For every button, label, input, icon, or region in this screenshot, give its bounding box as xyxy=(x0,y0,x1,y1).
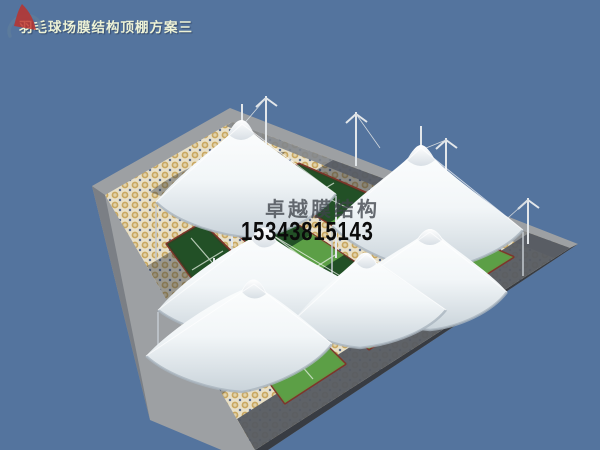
render-canvas: 羽毛球场膜结构顶棚方案三 卓越膜结构 15343815143 xyxy=(0,0,600,450)
watermark-phone-number: 15343815143 xyxy=(241,216,374,247)
company-logo-icon xyxy=(0,0,48,46)
